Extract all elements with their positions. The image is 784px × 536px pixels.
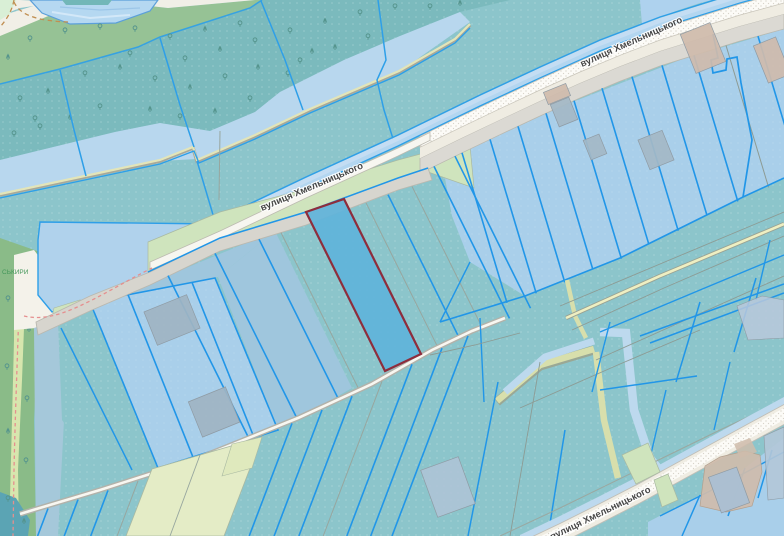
svg-text:СЬКИРИ: СЬКИРИ [2, 269, 29, 276]
